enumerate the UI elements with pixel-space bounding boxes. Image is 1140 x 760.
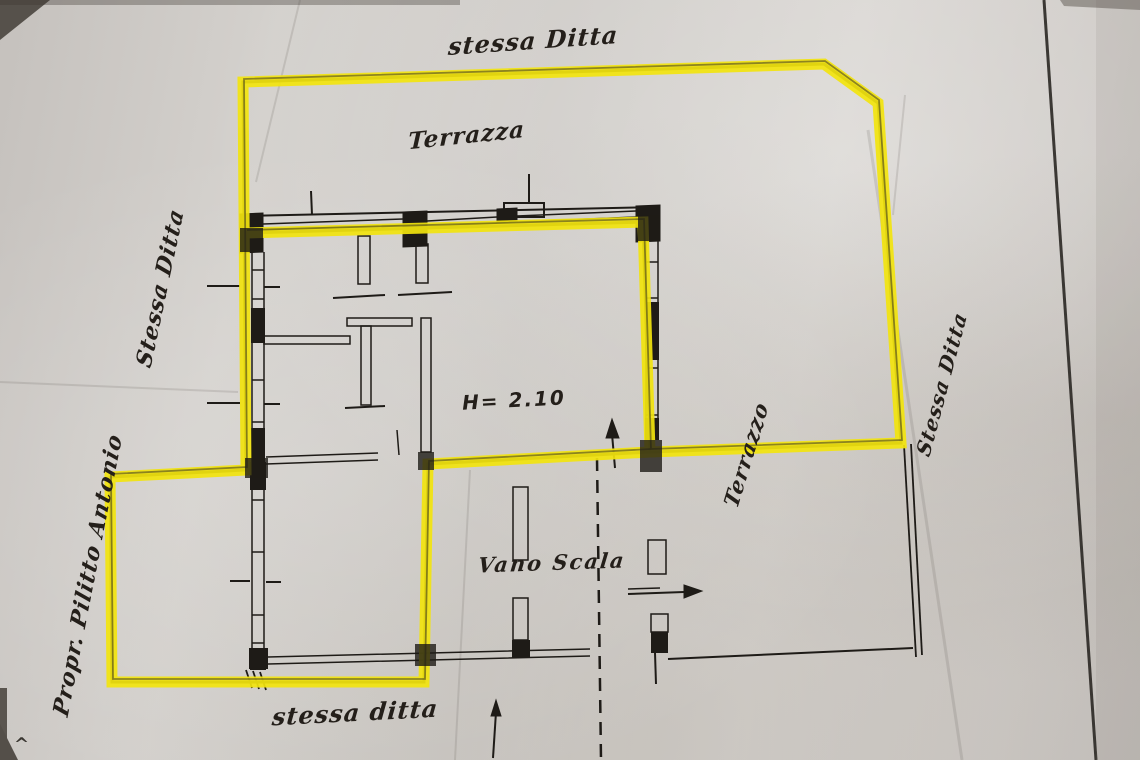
highlighter-outer-path [110,64,901,682]
highlighter-boundary [110,64,901,682]
photo-edge-shadows [0,0,1140,760]
plan-linework [207,174,922,690]
label-stairwell: Vano Scala [477,547,627,577]
up-arrow-icon [606,419,619,468]
ink-through-highlighter [111,61,902,679]
paper-creases [0,0,962,760]
boundary-ink-underlay [110,64,901,682]
photo-shadow-top-left [0,0,50,40]
highlighter-inner-path [246,222,650,452]
sheet-right-margin-shade [1096,0,1140,760]
stair-dashed-line [597,458,601,760]
entry-arrow-icon [491,700,501,758]
photo-shadow-top-strip [0,0,460,5]
corner-caret-mark: ^ [14,734,30,755]
sheet-border-line [1044,0,1096,760]
floor-plan-photo: stessa Ditta Terrazza Stessa Ditta H= 2.… [0,0,1140,760]
floor-plan-drawing [0,0,1140,760]
right-arrow-icon [628,585,702,598]
